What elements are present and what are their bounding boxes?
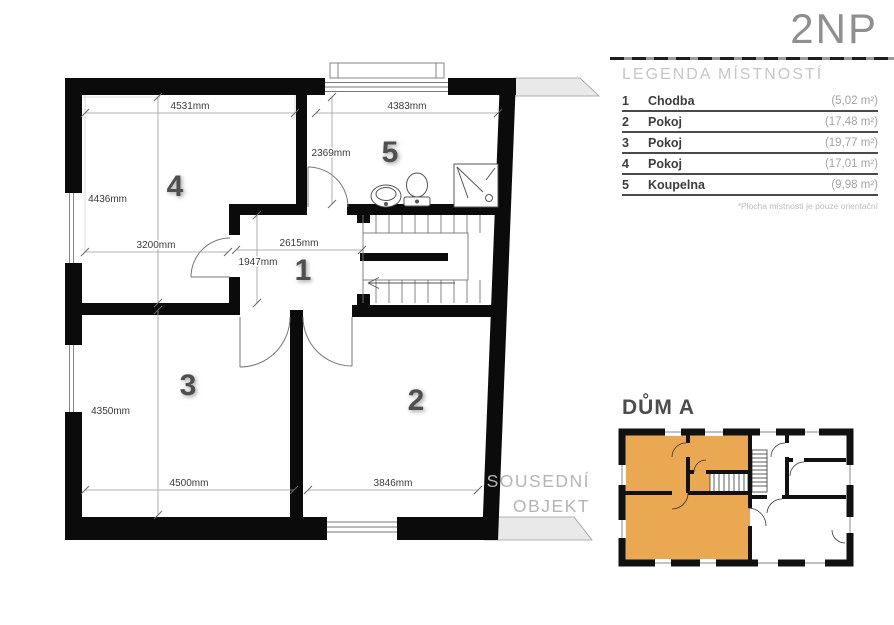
stair-treads-upper — [363, 215, 480, 233]
dim-room1-top: 2615mm — [280, 238, 319, 249]
legend-room-area: (5,02 m²) — [831, 95, 878, 107]
dim-room3-bottom: 4500mm — [170, 478, 209, 489]
legend-room-name: Chodba — [648, 94, 831, 108]
dim-room4-bottom: 3200mm — [137, 240, 176, 251]
toilet-icon — [404, 173, 430, 206]
legend-room-area: (17,01 m²) — [825, 158, 878, 170]
shower-icon — [454, 164, 498, 207]
room-legend: LEGENDA MÍSTNOSTÍ 1 Chodba (5,02 m²) 2 P… — [622, 66, 878, 211]
legend-room-area: (19,77 m²) — [825, 137, 878, 149]
room-label-1: 1 — [295, 254, 312, 287]
dim-room3-left: 4350mm — [91, 406, 130, 417]
legend-room-number: 5 — [622, 178, 648, 192]
windows — [65, 63, 448, 540]
room-label-5: 5 — [382, 136, 399, 169]
dim-room5-left: 2369mm — [312, 148, 351, 159]
dim-room4-top: 4531mm — [171, 101, 210, 112]
room-label-4: 4 — [167, 170, 184, 203]
dim-room4-left: 4436mm — [88, 194, 127, 205]
minimap-title: DŮM A — [622, 396, 695, 420]
window-left-upper — [65, 193, 82, 263]
neighbor-object-label: SOUSEDNÍ OBJEKT — [487, 471, 590, 516]
legend-room-number: 2 — [622, 115, 648, 129]
sink-icon — [371, 185, 401, 207]
legend-room-area: (17,48 m²) — [825, 116, 878, 128]
legend-room-number: 4 — [622, 157, 648, 171]
svg-text:SOUSEDNÍ: SOUSEDNÍ — [487, 471, 590, 491]
floor-title: 2NP — [610, 6, 878, 52]
legend-room-area: (9,98 m²) — [831, 179, 878, 191]
legend-room-name: Pokoj — [648, 115, 825, 129]
floorplan-page: 4531mm 4383mm 4436mm 2369mm 3200mm 2615m… — [0, 0, 894, 625]
legend-title: LEGENDA MÍSTNOSTÍ — [622, 66, 878, 84]
dim-room1-left: 1947mm — [239, 257, 278, 268]
legend-room-name: Pokoj — [648, 136, 825, 150]
header-divider — [610, 57, 894, 60]
stair-direction-arrow — [368, 278, 455, 289]
legend-footnote: *Plocha místností je pouze orientační — [622, 201, 878, 211]
legend-row: 5 Koupelna (9,98 m²) — [622, 175, 878, 196]
svg-text:OBJEKT: OBJEKT — [513, 496, 590, 516]
door-room3 — [240, 317, 290, 367]
legend-row: 3 Pokoj (19,77 m²) — [622, 133, 878, 154]
dim-room5-top: 4383mm — [388, 101, 427, 112]
window-left-lower — [65, 345, 82, 412]
legend-row: 2 Pokoj (17,48 m²) — [622, 112, 878, 133]
minimap-house-a — [610, 425, 894, 590]
window-bottom — [327, 517, 397, 540]
minimap-highlighted-unit — [625, 435, 750, 563]
legend-row: 1 Chodba (5,02 m²) — [622, 91, 878, 112]
room-label-2: 2 — [408, 384, 425, 417]
legend-room-number: 1 — [622, 94, 648, 108]
room-label-3: 3 — [180, 369, 197, 402]
walls — [65, 78, 516, 540]
neighbor-strip-bottom — [484, 517, 592, 540]
legend-room-number: 3 — [622, 136, 648, 150]
door-room4 — [191, 238, 230, 277]
door-room5 — [308, 167, 348, 207]
floorplan-drawing: 4531mm 4383mm 4436mm 2369mm 3200mm 2615m… — [0, 0, 610, 625]
legend-row: 4 Pokoj (17,01 m²) — [622, 154, 878, 175]
dim-room2-bottom: 3846mm — [374, 478, 413, 489]
window-top — [325, 63, 448, 95]
neighbor-strip-top — [514, 78, 599, 96]
legend-room-name: Pokoj — [648, 157, 825, 171]
legend-room-name: Koupelna — [648, 178, 831, 192]
stair-treads-lower — [363, 280, 480, 303]
door-room2 — [303, 317, 352, 366]
